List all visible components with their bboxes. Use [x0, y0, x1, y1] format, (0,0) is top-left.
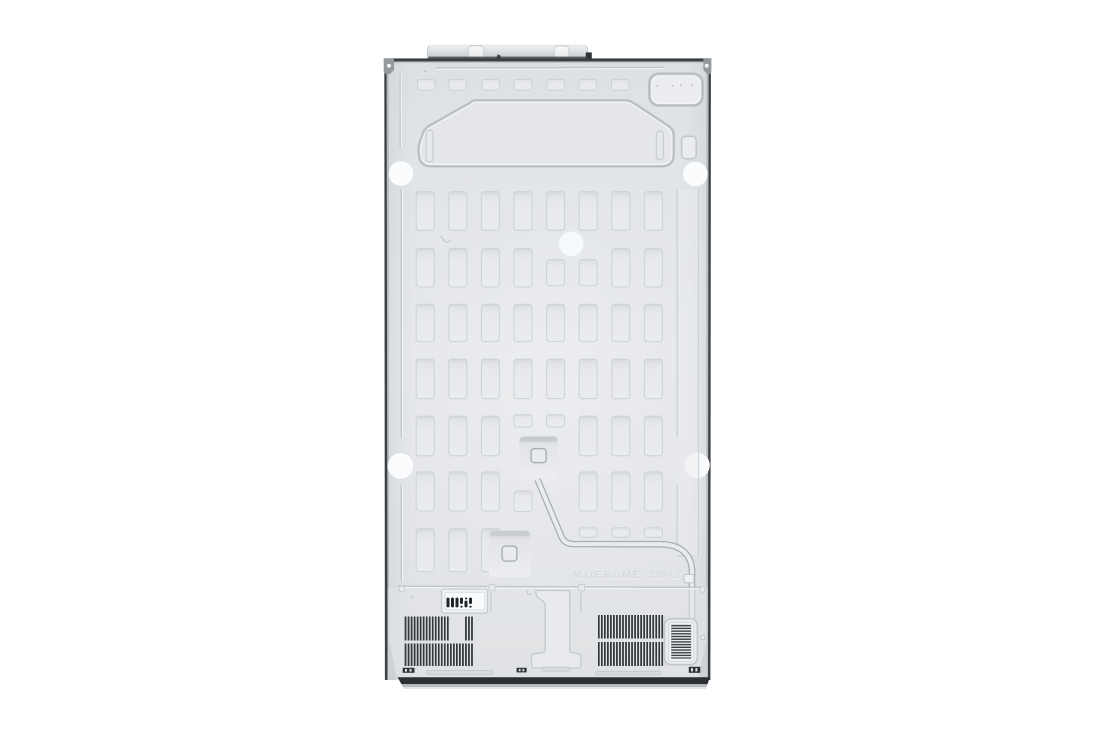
svg-text:MQEB0ME-3W/2: MQEB0ME-3W/2: [573, 569, 682, 581]
